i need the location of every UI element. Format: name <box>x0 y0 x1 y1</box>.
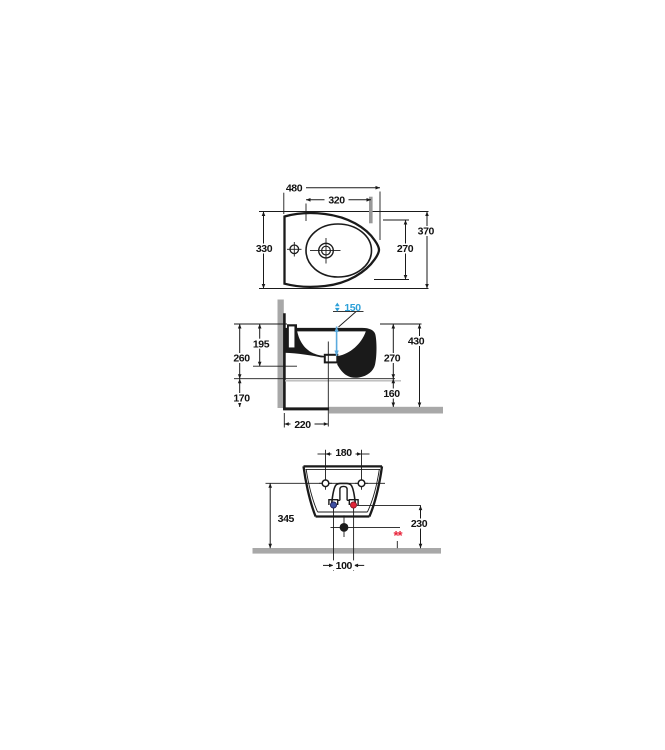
hot-water-connection-dot <box>350 502 356 508</box>
dim-label-drain-from-wall: 220 <box>294 419 311 431</box>
top-view: 480 320 330 370 270 <box>252 182 438 288</box>
side-view: 150 195 260 170 430 270 160 220 <box>230 300 444 431</box>
dim-label-supply-spacing: 100 <box>336 560 353 572</box>
dim-label-rear-width: 330 <box>256 243 273 255</box>
leader-line <box>339 312 357 327</box>
dim-label-rim-to-belly: 260 <box>233 353 250 365</box>
dim-label-overall-depth: 370 <box>418 226 435 238</box>
body-side-left <box>304 466 316 516</box>
dim-label-overall-height: 430 <box>408 336 425 348</box>
tap-hole-crosshair <box>287 242 302 257</box>
technical-drawing-page: 480 320 330 370 270 <box>0 0 665 750</box>
dim-label-overall-length: 480 <box>286 182 303 194</box>
body-side-right <box>369 466 382 516</box>
dim-label-front-height: 270 <box>384 353 401 365</box>
front-view: ** 180 345 230 100 <box>253 447 442 572</box>
drain-hole-crosshair <box>310 238 341 264</box>
note-asterisks: ** <box>393 528 403 543</box>
dim-label-fixing-height: 345 <box>278 513 295 525</box>
dim-label-supply-height: 230 <box>411 518 428 530</box>
floor-bar <box>329 407 443 414</box>
dim-label-bowl-width: 270 <box>397 243 414 255</box>
bidet-technical-drawing: 480 320 330 370 270 <box>0 0 665 750</box>
dim-label-fixing-hole-spacing: 180 <box>335 447 352 459</box>
dim-label-belly-to-floor: 170 <box>233 393 250 405</box>
dim-label-rim-to-underside: 195 <box>253 338 270 350</box>
floor-bar-front <box>253 548 442 554</box>
back-channel-slot <box>340 486 347 500</box>
wall-bar <box>278 300 284 409</box>
fixing-section-box <box>288 326 295 349</box>
cold-water-connection-dot <box>330 502 336 508</box>
dim-label-bowl-length: 320 <box>328 195 345 207</box>
jet-height-icon <box>335 303 340 312</box>
drain-outlet-front <box>331 515 401 537</box>
plan-wall-marker-bar <box>369 197 373 224</box>
dim-label-jet-height: 150 <box>344 302 361 314</box>
drain-fitting-section <box>325 355 338 363</box>
dim-label-front-clearance: 160 <box>383 388 400 400</box>
